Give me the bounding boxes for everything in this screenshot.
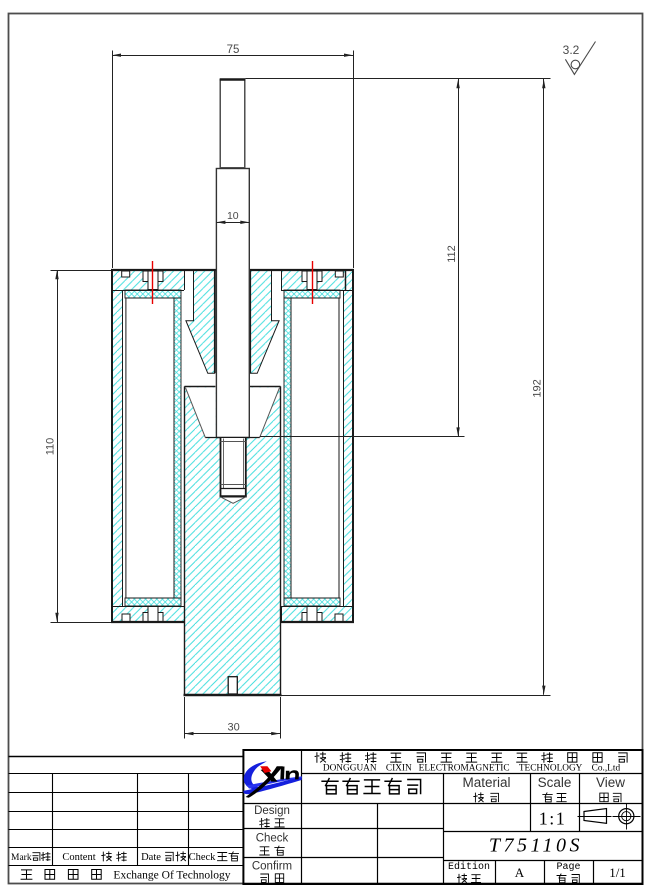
svg-text:View: View: [596, 775, 625, 790]
svg-text:110: 110: [45, 438, 57, 456]
svg-text:Date: Date: [141, 852, 161, 863]
svg-text:192: 192: [531, 379, 543, 397]
svg-text:Confirm: Confirm: [252, 861, 292, 873]
svg-text:Check: Check: [256, 833, 289, 845]
svg-text:Check: Check: [189, 852, 217, 863]
svg-text:T75110S: T75110S: [489, 835, 583, 857]
svg-text:DONGGUAN CIXIN ELECTROMAG: DONGGUAN CIXIN ELECTROMAGNETIC TECHNOLOG…: [323, 764, 621, 774]
svg-text:3.2: 3.2: [563, 43, 580, 57]
svg-text:Design: Design: [254, 805, 290, 817]
svg-text:Exchange Of Technology: Exchange Of Technology: [113, 870, 230, 882]
svg-text:1:1: 1:1: [539, 809, 567, 829]
svg-text:30: 30: [227, 722, 239, 734]
svg-text:Scale: Scale: [538, 775, 572, 790]
svg-text:75: 75: [227, 44, 240, 56]
svg-text:Page: Page: [556, 862, 580, 873]
svg-text:10: 10: [227, 210, 239, 222]
svg-text:A: A: [515, 865, 525, 880]
svg-text:Mark: Mark: [11, 853, 32, 863]
svg-text:112: 112: [446, 245, 458, 263]
svg-text:1/1: 1/1: [609, 865, 626, 880]
svg-text:Content: Content: [62, 852, 95, 863]
svg-text:Edition: Edition: [448, 861, 490, 873]
svg-text:Material: Material: [462, 775, 510, 790]
